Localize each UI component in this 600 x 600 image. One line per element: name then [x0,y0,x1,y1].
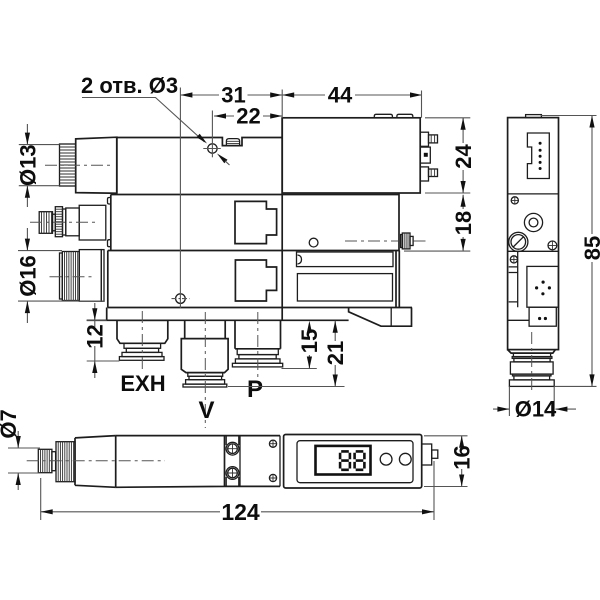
svg-text:2 отв. Ø3: 2 отв. Ø3 [81,73,178,98]
svg-text:12: 12 [83,324,108,348]
svg-text:22: 22 [236,104,260,129]
svg-text:85: 85 [580,236,600,260]
svg-text:V: V [198,397,214,424]
svg-text:21: 21 [323,341,348,365]
svg-text:16: 16 [450,445,475,469]
svg-text:44: 44 [328,83,353,108]
svg-text:124: 124 [221,499,260,525]
svg-text:P: P [247,376,263,403]
svg-text:EXH: EXH [120,371,165,396]
svg-text:18: 18 [451,211,476,235]
svg-text:15: 15 [297,329,322,353]
svg-text:Ø14: Ø14 [515,397,557,422]
svg-text:Ø16: Ø16 [16,255,41,297]
svg-text:Ø13: Ø13 [16,144,41,186]
svg-text:24: 24 [451,144,476,169]
svg-text:Ø7: Ø7 [0,409,21,438]
